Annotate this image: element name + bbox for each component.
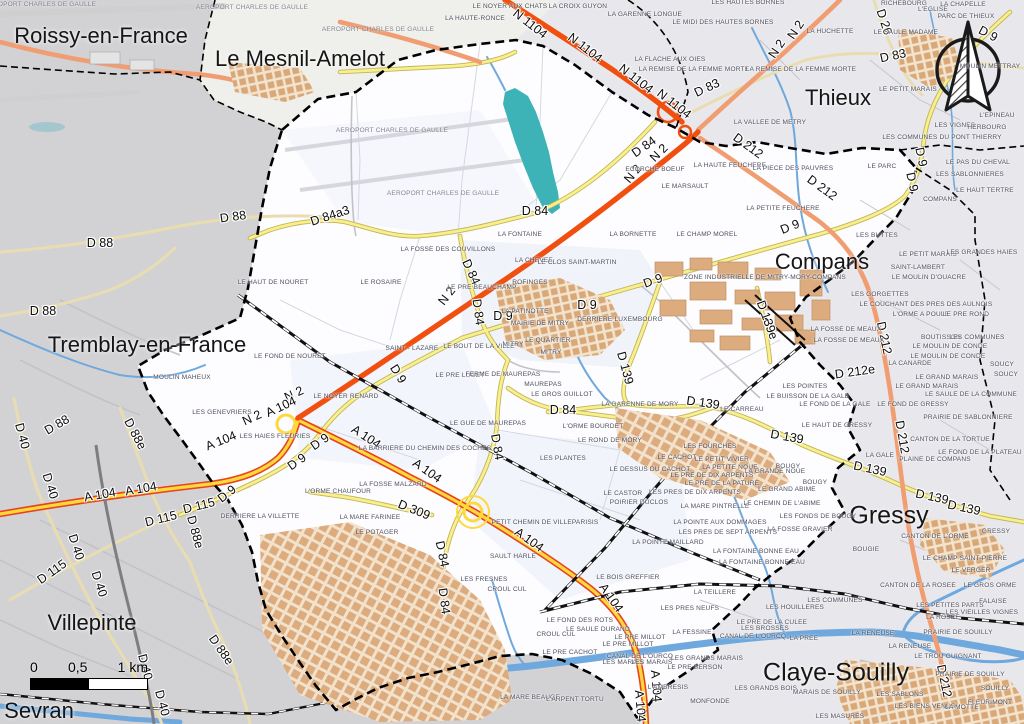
scale-one: 1 km xyxy=(118,659,148,675)
commune-map: Roissy-en-FranceLe Mesnil-AmelotThieuxTr… xyxy=(0,0,1024,724)
scale-zero: 0 xyxy=(30,659,38,675)
scale-half: 0,5 xyxy=(68,659,87,675)
scale-bar-rule xyxy=(30,678,148,690)
map-geometry xyxy=(0,0,1024,724)
scale-bar: 0 0,5 1 km xyxy=(30,659,148,690)
